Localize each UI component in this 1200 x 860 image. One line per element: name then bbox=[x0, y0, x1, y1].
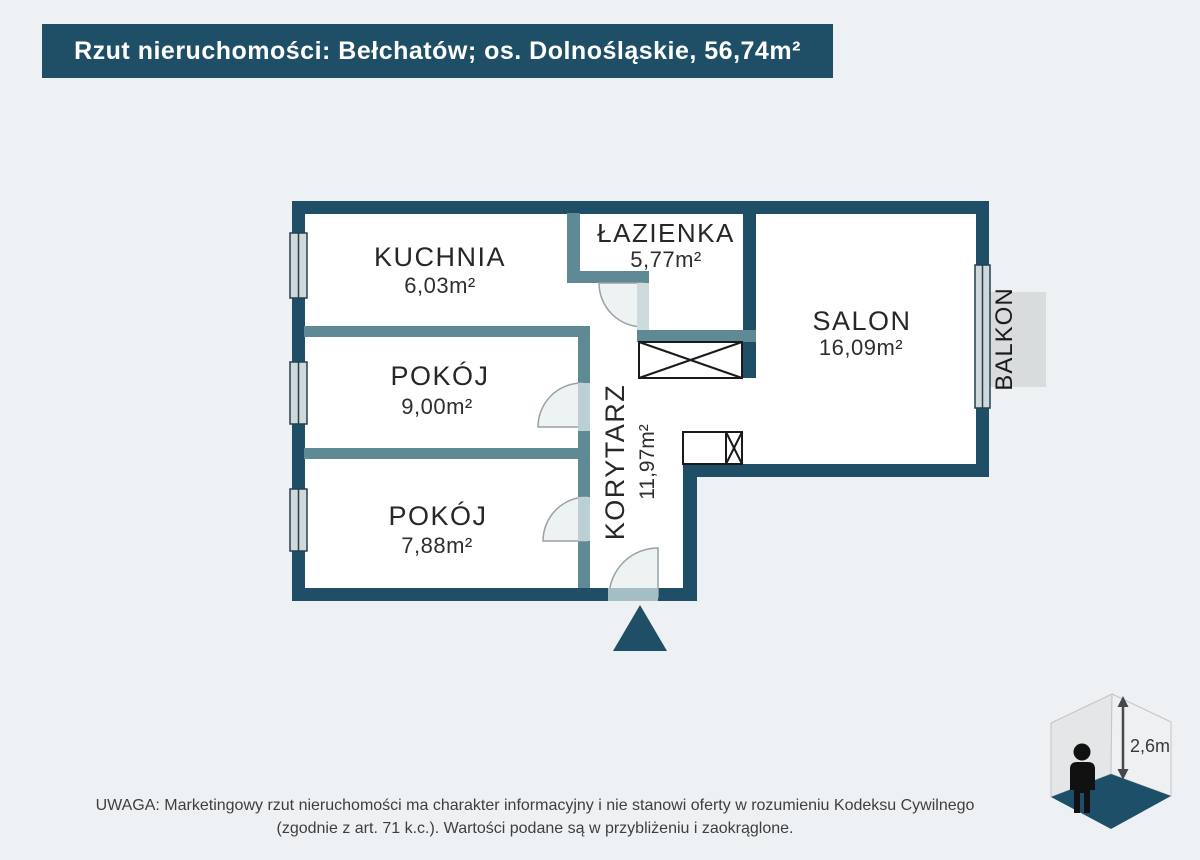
wall-bath-salon bbox=[743, 213, 756, 378]
bathroom-label: ŁAZIENKA bbox=[597, 218, 735, 248]
wall-salon-bottom bbox=[683, 464, 989, 477]
entrance-door-leaf bbox=[608, 588, 658, 601]
wall-top bbox=[292, 201, 989, 214]
room9-area: 9,00m² bbox=[401, 394, 472, 419]
wall-bottom-right bbox=[658, 588, 697, 601]
room7-label: POKÓJ bbox=[388, 500, 487, 531]
room9-door-leaf bbox=[578, 383, 590, 431]
corridor-label: KORYTARZ bbox=[600, 384, 630, 541]
room7-door-leaf bbox=[578, 497, 590, 541]
floor-plan-page: Rzut nieruchomości: Bełchatów; os. Dolno… bbox=[0, 0, 1200, 860]
wall-corridor-left-3 bbox=[578, 541, 590, 588]
room9-label: POKÓJ bbox=[390, 360, 489, 391]
disclaimer-line-1: UWAGA: Marketingowy rzut nieruchomości m… bbox=[35, 794, 1035, 817]
entrance-arrow-icon bbox=[613, 605, 667, 651]
ceiling-height-value: 2,6m bbox=[1130, 736, 1170, 756]
living-room-label: SALON bbox=[812, 306, 911, 336]
room7-area: 7,88m² bbox=[401, 533, 472, 558]
kitchen-area: 6,03m² bbox=[404, 273, 475, 298]
wall-kitchen-bottom bbox=[304, 326, 590, 337]
wall-corridor-left-2 bbox=[578, 431, 590, 497]
balcony-label: BALKON bbox=[991, 287, 1018, 390]
wall-bottom-left bbox=[292, 588, 608, 601]
floor-plan-drawing: KUCHNIA 6,03m² ŁAZIENKA 5,77m² SALON 16,… bbox=[0, 0, 1200, 860]
wall-bath-bottom-left bbox=[567, 271, 649, 283]
ceiling-height-cube-icon: 2,6m bbox=[1051, 694, 1171, 829]
disclaimer: UWAGA: Marketingowy rzut nieruchomości m… bbox=[35, 794, 1035, 840]
corridor-area: 11,97m² bbox=[636, 424, 659, 499]
wall-corridor-left-1 bbox=[578, 326, 590, 383]
wall-rooms-divider bbox=[304, 448, 590, 459]
living-room-area: 16,09m² bbox=[819, 335, 903, 360]
wall-bath-bottom-right bbox=[637, 330, 756, 342]
disclaimer-line-2: (zgodnie z art. 71 k.c.). Wartości podan… bbox=[35, 817, 1035, 840]
bathroom-door-leaf bbox=[637, 283, 649, 330]
kitchen-label: KUCHNIA bbox=[374, 242, 506, 272]
bathroom-area: 5,77m² bbox=[630, 247, 701, 272]
wall-corridor-right bbox=[683, 464, 697, 601]
